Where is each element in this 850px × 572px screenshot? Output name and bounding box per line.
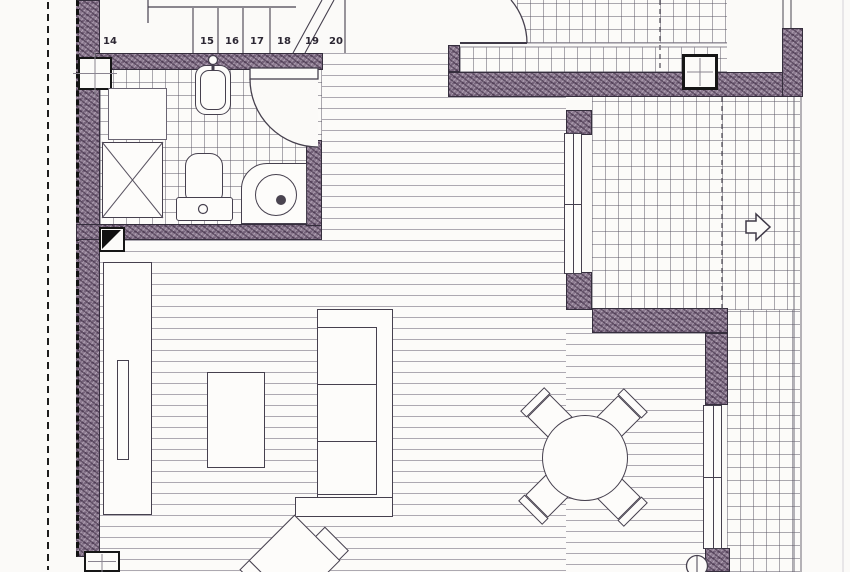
window-divider — [565, 204, 581, 205]
stair-step-number: 17 — [248, 36, 266, 47]
dining-area-window — [703, 405, 722, 549]
living-window-pier-bottom — [566, 272, 592, 310]
stair-step-number: 19 — [303, 36, 321, 47]
washbasin-inner — [200, 70, 226, 110]
terrace-top-wall — [448, 72, 803, 97]
dining-right-wall — [705, 333, 728, 405]
bathroom-bottom-wall — [76, 224, 322, 240]
stair-step-number: 20 — [327, 36, 345, 47]
topright-window-frame — [783, 0, 791, 28]
floor-plan-canvas: 14 15 16 17 18 19 20 — [0, 0, 850, 572]
bathroom-door-jamb-wall — [306, 140, 322, 226]
sofa-cushion-divider — [318, 441, 376, 442]
dining-table-round — [542, 415, 628, 501]
tv-screen — [117, 360, 129, 460]
stair-step-number: 15 — [198, 36, 216, 47]
toilet-cistern — [176, 197, 233, 221]
hall-top-landing — [345, 0, 448, 53]
stair-step-number: 14 — [101, 36, 119, 47]
sofa-seat-cushions — [317, 327, 377, 495]
terrace-side-strip-tiles — [727, 310, 800, 572]
stair-step-number: 16 — [223, 36, 241, 47]
sofa-bottom-armrest — [295, 497, 393, 517]
column-left-bottom — [84, 551, 120, 572]
window-divider — [704, 477, 721, 478]
terrace-main-tiles — [592, 97, 800, 310]
entry-jamb-wall — [448, 45, 460, 72]
dining-top-wall — [592, 308, 728, 333]
bathroom-cabinet — [108, 88, 167, 140]
column-left-top — [78, 57, 112, 90]
stair-step-number: 18 — [275, 36, 293, 47]
washing-machine-drum — [255, 174, 297, 216]
dining-right-pier-bottom — [705, 548, 730, 572]
entry-door-zone — [448, 0, 517, 47]
shower-tray — [102, 142, 163, 218]
living-window-pier-top — [566, 110, 592, 135]
column-terrace — [682, 54, 718, 90]
living-room-window — [564, 133, 582, 274]
terrace-upper-tiles — [517, 0, 727, 43]
coffee-table — [207, 372, 265, 468]
sofa-cushion-divider — [318, 384, 376, 385]
toilet-bowl — [185, 153, 223, 203]
terrace-right-top-wall — [782, 28, 803, 97]
